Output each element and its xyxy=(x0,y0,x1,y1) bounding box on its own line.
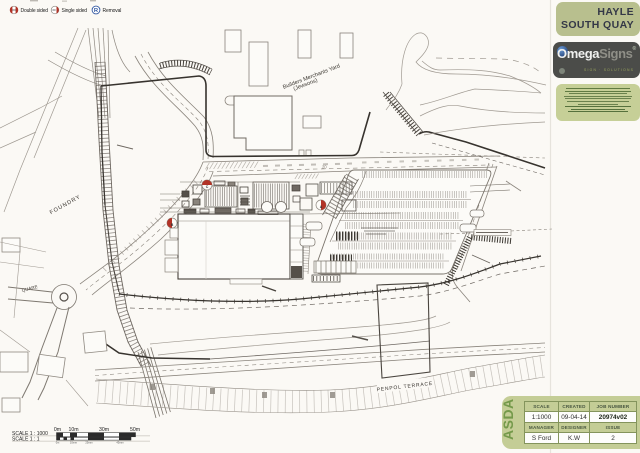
svg-text:QUARE: QUARE xyxy=(21,284,38,293)
svg-text:10mm: 10mm xyxy=(70,441,77,445)
svg-text:30m: 30m xyxy=(99,427,109,433)
svg-text:10m: 10m xyxy=(68,427,78,433)
svg-text:50m: 50m xyxy=(130,427,140,433)
svg-text:0m: 0m xyxy=(54,427,61,433)
svg-text:00: 00 xyxy=(12,8,16,12)
svg-text:25mm: 25mm xyxy=(85,441,92,445)
svg-text:A: A xyxy=(320,205,323,209)
svg-text:B: B xyxy=(171,223,174,227)
svg-text:C: C xyxy=(206,185,209,189)
svg-text:FOUNDRY: FOUNDRY xyxy=(49,194,82,216)
svg-text:20: 20 xyxy=(322,164,328,169)
svg-text:Removal: Removal xyxy=(103,8,122,14)
svg-text:0m: 0m xyxy=(56,441,60,445)
svg-text:Single sided: Single sided xyxy=(62,8,88,14)
svg-text:Double sided: Double sided xyxy=(21,8,49,14)
svg-text:00: 00 xyxy=(52,8,56,12)
svg-text:Builders Merchants Yard: Builders Merchants Yard xyxy=(282,63,341,90)
svg-text:SCALE 1 : 1: SCALE 1 : 1 xyxy=(12,437,40,443)
svg-text:45mm: 45mm xyxy=(116,441,123,445)
